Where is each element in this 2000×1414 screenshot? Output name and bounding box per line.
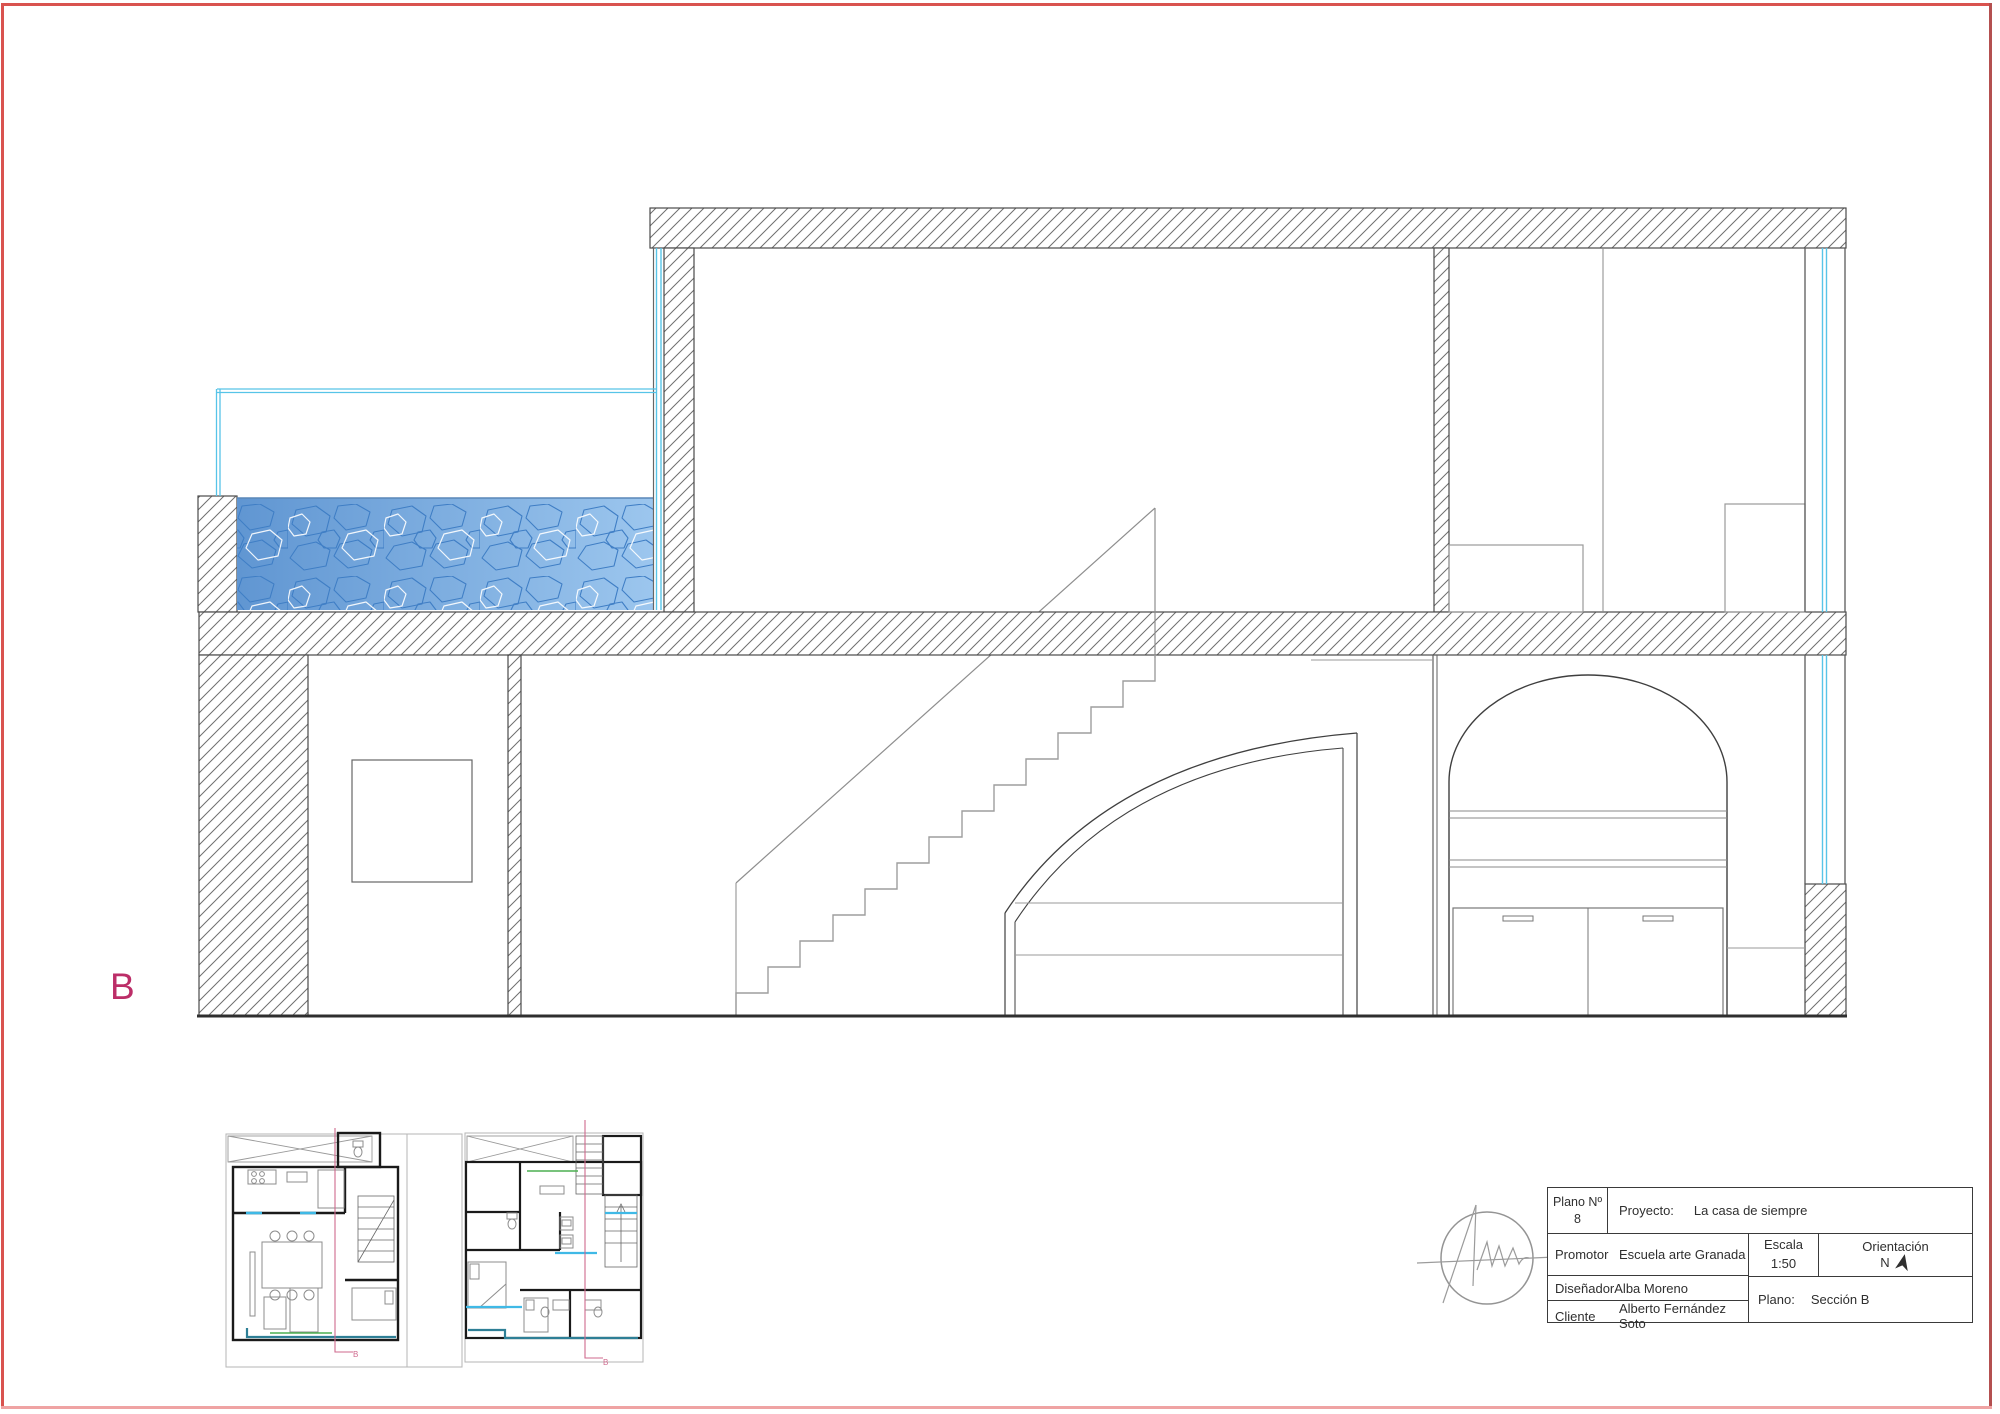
- plan2-furniture: [468, 1186, 602, 1332]
- staircase: [736, 508, 1155, 1016]
- pool-glass-railing: [217, 389, 657, 496]
- promotor-cell: Promotor Escuela arte Granada: [1548, 1234, 1748, 1276]
- plano-number-value: 8: [1574, 1211, 1581, 1227]
- plan1-furniture: [248, 1141, 396, 1332]
- floor-plan-2: [465, 1120, 643, 1362]
- ground-left-wall: [199, 655, 308, 1016]
- hatched-walls: [198, 208, 1846, 1016]
- plan1-section-marker: B: [353, 1350, 358, 1359]
- disenador-label: Diseñador: [1555, 1281, 1614, 1296]
- plan1-stairs: [358, 1196, 394, 1262]
- escala-label: Escala: [1764, 1236, 1803, 1255]
- project-label: Proyecto:: [1619, 1203, 1674, 1218]
- drawing-sheet: B B B Plano Nº 8 Proyecto: La casa de si…: [0, 0, 2000, 1414]
- cliente-cell: Cliente Alberto Fernández Soto: [1548, 1301, 1748, 1331]
- north-arrow-icon: [1895, 1254, 1911, 1271]
- right-glass-facade: [1805, 248, 1845, 884]
- stair-steps: [736, 655, 1155, 1016]
- pool-left-wall: [198, 496, 237, 612]
- title-block: Plano Nº 8 Proyecto: La casa de siempre …: [1547, 1187, 1973, 1323]
- plano-value: Sección B: [1811, 1292, 1870, 1307]
- upper-room-furniture-right: [1725, 504, 1805, 612]
- project-value: La casa de siempre: [1694, 1203, 1807, 1218]
- arched-alcove: [1449, 675, 1805, 1016]
- ground-partition-wall: [508, 655, 521, 1016]
- plano-number-label: Plano Nº: [1553, 1194, 1602, 1210]
- signature-strokes: [1417, 1205, 1555, 1303]
- promotor-label: Promotor: [1555, 1247, 1619, 1262]
- stair-balustrade-line: [736, 508, 1155, 883]
- orientacion-label: Orientación: [1862, 1239, 1928, 1255]
- project-cell: Proyecto: La casa de siempre: [1608, 1188, 1972, 1233]
- upper-partition-wall: [1434, 248, 1449, 612]
- understair-closet: [1005, 733, 1357, 1016]
- plan2-void-cross: [467, 1136, 573, 1162]
- plan1-void-cross: [228, 1136, 372, 1162]
- designer-logo: [1437, 1206, 1537, 1310]
- plano-label: Plano:: [1758, 1292, 1795, 1307]
- building-section: [197, 208, 1847, 1016]
- orientacion-cell: Orientación N: [1819, 1234, 1972, 1276]
- plan2-section-line: [585, 1120, 603, 1358]
- escala-value: 1:50: [1771, 1255, 1796, 1274]
- roof-slab: [650, 208, 1846, 248]
- wall-niche: [352, 760, 472, 882]
- orientacion-n: N: [1880, 1255, 1889, 1271]
- promotor-value: Escuela arte Granada: [1619, 1247, 1745, 1262]
- alcove-cabinet: [1453, 908, 1723, 1015]
- upper-left-wall: [664, 248, 694, 612]
- left-glass: [657, 248, 662, 610]
- floor-plan-1: [226, 1128, 462, 1367]
- cliente-label: Cliente: [1555, 1309, 1619, 1324]
- plan2-section-marker: B: [603, 1358, 608, 1367]
- plano-number-cell: Plano Nº 8: [1548, 1188, 1608, 1233]
- cliente-value: Alberto Fernández Soto: [1619, 1301, 1748, 1331]
- upper-room-furniture-left: [1449, 545, 1583, 612]
- escala-cell: Escala 1:50: [1749, 1234, 1819, 1276]
- ground-right-low-wall: [1805, 884, 1846, 1016]
- plano-cell: Plano: Sección B: [1749, 1277, 1972, 1322]
- section-marker-label: B: [110, 966, 136, 1008]
- disenador-cell: Diseñador Alba Moreno: [1548, 1276, 1748, 1301]
- floor-slab: [199, 612, 1846, 655]
- pool-water: [237, 498, 654, 610]
- disenador-value: Alba Moreno: [1614, 1281, 1688, 1296]
- interior-wall: [1311, 655, 1437, 1016]
